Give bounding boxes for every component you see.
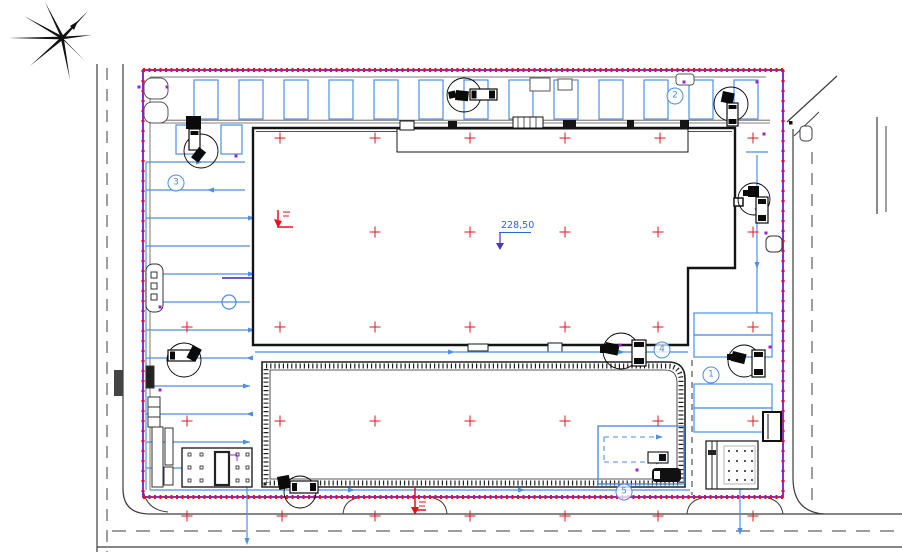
truck-template-icon <box>447 78 497 112</box>
truck-template-icon <box>727 345 765 377</box>
truck-template-icon <box>184 116 218 168</box>
plan-linework <box>0 0 902 552</box>
building-outline <box>253 117 743 352</box>
elevation-label: 228,50 <box>501 220 534 231</box>
north-arrow-icon <box>8 2 92 80</box>
left-parking-rows <box>146 160 268 491</box>
truck-template-icon <box>167 343 202 377</box>
benchmark-marker-icon <box>411 487 426 515</box>
curb-bump <box>766 236 782 252</box>
site-plan-canvas: 12345 228,50 <box>0 0 902 552</box>
elevation-value: 228,50 <box>501 220 534 231</box>
yard-outline <box>262 362 685 487</box>
